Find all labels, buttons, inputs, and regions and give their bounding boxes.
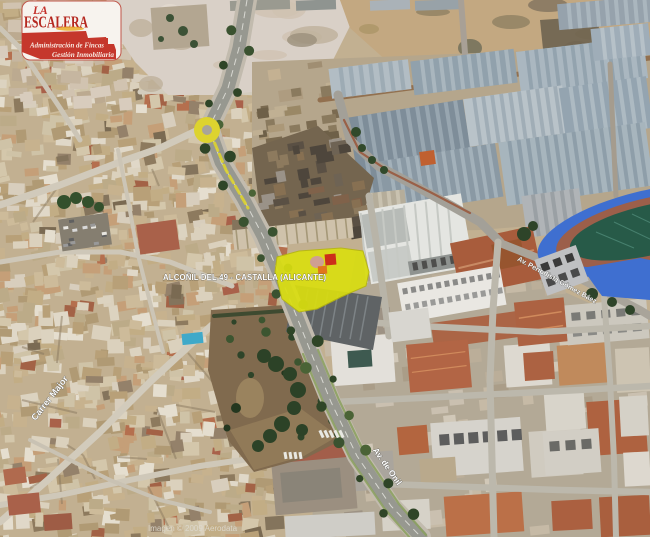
svg-text:Administración de Fincas: Administración de Fincas xyxy=(29,41,104,50)
svg-text:Gestión Inmobiliaria: Gestión Inmobiliaria xyxy=(52,50,114,59)
svg-text:ALCOÑIL DEL 49 - CASTALLA (ALI: ALCOÑIL DEL 49 - CASTALLA (ALICANTE) xyxy=(163,273,326,282)
svg-text:Imagen © 2009 Aerodata: Imagen © 2009 Aerodata xyxy=(148,524,238,533)
